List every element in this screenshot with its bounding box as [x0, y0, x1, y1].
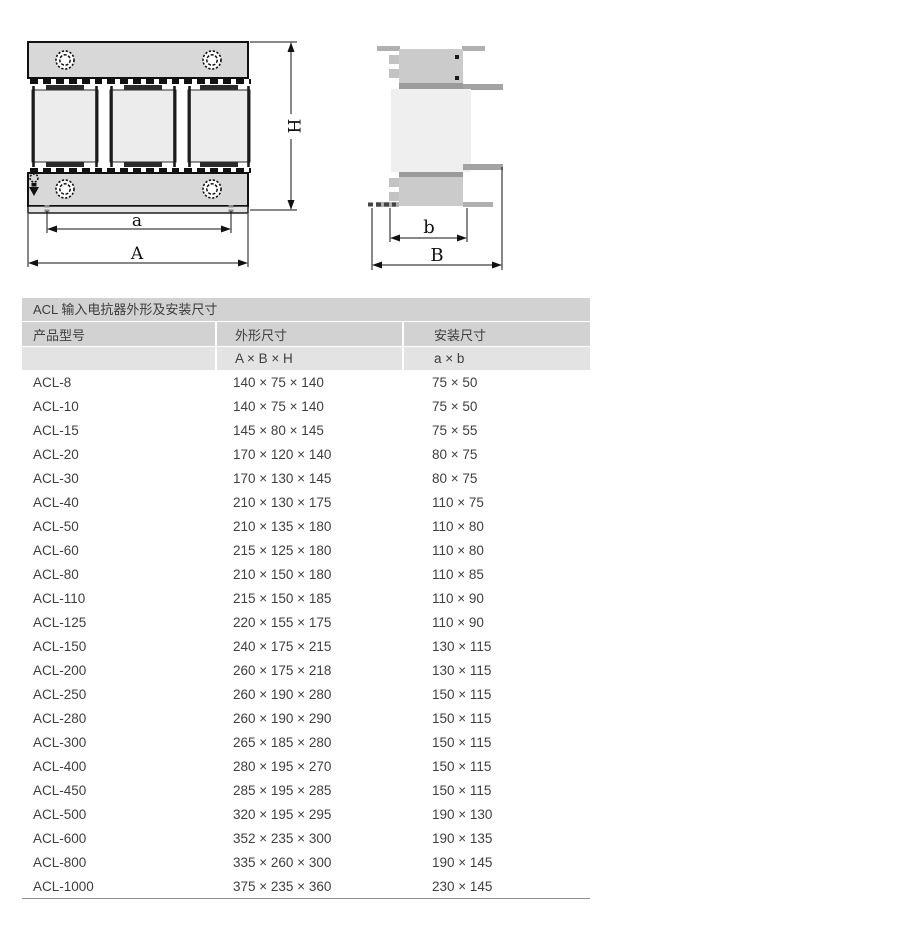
mount-dimensions-cell: 75 × 50 [402, 370, 590, 394]
table-row: ACL-8 140 × 75 × 140 75 × 50 [22, 370, 590, 394]
mount-dimensions-cell: 130 × 115 [402, 658, 590, 682]
table-row: ACL-125 220 × 155 × 175 110 × 90 [22, 610, 590, 634]
mount-dimensions-cell: 150 × 115 [402, 730, 590, 754]
model-cell: ACL-80 [22, 562, 215, 586]
table-subheader-row: A × B × H a × b [22, 347, 590, 370]
clamp-tab [389, 69, 399, 78]
bottom-clamp-side [399, 172, 463, 206]
coil-tab [46, 162, 84, 167]
outline-dimensions-cell: 260 × 175 × 218 [215, 658, 402, 682]
table-row: ACL-150 240 × 175 × 215 130 × 115 [22, 634, 590, 658]
top-rail-left [377, 46, 400, 51]
model-cell: ACL-800 [22, 850, 215, 874]
subheader-empty [22, 347, 215, 370]
coil [110, 90, 176, 162]
mount-dimensions-cell: 110 × 90 [402, 586, 590, 610]
coil-tab [200, 85, 238, 90]
model-cell: ACL-20 [22, 442, 215, 466]
top-rail-right [462, 46, 485, 51]
table-row: ACL-40 210 × 130 × 175 110 × 75 [22, 490, 590, 514]
table-row: ACL-300 265 × 185 × 280 150 × 115 [22, 730, 590, 754]
mount-dimensions-cell: 150 × 115 [402, 754, 590, 778]
outline-dimensions-cell: 352 × 235 × 300 [215, 826, 402, 850]
table-row: ACL-60 215 × 125 × 180 110 × 80 [22, 538, 590, 562]
dimension-label-H: H [283, 119, 303, 134]
mount-dimensions-cell: 230 × 145 [402, 874, 590, 899]
table-row: ACL-10 140 × 75 × 140 75 × 50 [22, 394, 590, 418]
mount-dimensions-cell: 130 × 115 [402, 634, 590, 658]
model-cell: ACL-280 [22, 706, 215, 730]
mount-dimensions-cell: 190 × 145 [402, 850, 590, 874]
table-row: ACL-20 170 × 120 × 140 80 × 75 [22, 442, 590, 466]
table-row: ACL-450 285 × 195 × 285 150 × 115 [22, 778, 590, 802]
subheader-mount-formula: a × b [402, 347, 590, 370]
outline-dimensions-cell: 280 × 195 × 270 [215, 754, 402, 778]
outline-dimensions-cell: 265 × 185 × 280 [215, 730, 402, 754]
mount-dimensions-cell: 150 × 115 [402, 706, 590, 730]
model-cell: ACL-500 [22, 802, 215, 826]
table-row: ACL-1000 375 × 235 × 360 230 × 145 [22, 874, 590, 899]
outline-dimensions-cell: 140 × 75 × 140 [215, 394, 402, 418]
model-cell: ACL-450 [22, 778, 215, 802]
mount-dimensions-cell: 110 × 85 [402, 562, 590, 586]
table-row: ACL-250 260 × 190 × 280 150 × 115 [22, 682, 590, 706]
bolt-hole-icon [56, 180, 74, 198]
mount-dimensions-cell: 110 × 80 [402, 514, 590, 538]
coil [32, 90, 98, 162]
model-cell: ACL-60 [22, 538, 215, 562]
mount-dimensions-cell: 80 × 75 [402, 466, 590, 490]
dimensions-table-section: ACL 输入电抗器外形及安装尺寸 产品型号 外形尺寸 安装尺寸 A × B × … [22, 298, 590, 899]
coil-tab [124, 85, 162, 90]
mount-dimensions-cell: 80 × 75 [402, 442, 590, 466]
outline-dimensions-cell: 335 × 260 × 300 [215, 850, 402, 874]
outline-dimensions-cell: 215 × 125 × 180 [215, 538, 402, 562]
coil-tab [124, 162, 162, 167]
bolt-hole-icon [203, 51, 221, 69]
clamp-tab [389, 55, 399, 64]
model-cell: ACL-50 [22, 514, 215, 538]
dimension-label-B: B [430, 245, 443, 266]
clamp-tab [389, 192, 399, 201]
column-header-mount: 安装尺寸 [402, 322, 590, 347]
column-header-outline: 外形尺寸 [215, 322, 402, 347]
outline-dimensions-cell: 170 × 120 × 140 [215, 442, 402, 466]
model-cell: ACL-600 [22, 826, 215, 850]
table-row: ACL-280 260 × 190 × 290 150 × 115 [22, 706, 590, 730]
table-row: ACL-600 352 × 235 × 300 190 × 135 [22, 826, 590, 850]
model-cell: ACL-40 [22, 490, 215, 514]
top-clamp-side [399, 49, 463, 85]
dimension-label-a: a [132, 211, 142, 231]
coil-body-side [391, 89, 471, 172]
side-rail-lower [463, 164, 503, 170]
table-row: ACL-400 280 × 195 × 270 150 × 115 [22, 754, 590, 778]
bolt-hole-icon [56, 51, 74, 69]
foot-rail-right [463, 202, 493, 207]
model-cell: ACL-10 [22, 394, 215, 418]
model-cell: ACL-200 [22, 658, 215, 682]
outline-dimensions-cell: 220 × 155 × 175 [215, 610, 402, 634]
technical-drawings: H a A [0, 0, 900, 292]
model-cell: ACL-110 [22, 586, 215, 610]
mount-dimensions-cell: 190 × 130 [402, 802, 590, 826]
mount-dimensions-cell: 110 × 75 [402, 490, 590, 514]
model-cell: ACL-1000 [22, 874, 215, 899]
outline-dimensions-cell: 240 × 175 × 215 [215, 634, 402, 658]
outline-dimensions-cell: 215 × 150 × 185 [215, 586, 402, 610]
coil-tab [200, 162, 238, 167]
outline-dimensions-cell: 210 × 150 × 180 [215, 562, 402, 586]
table-row: ACL-15 145 × 80 × 145 75 × 55 [22, 418, 590, 442]
table-row: ACL-50 210 × 135 × 180 110 × 80 [22, 514, 590, 538]
outline-dimensions-cell: 260 × 190 × 290 [215, 706, 402, 730]
outline-dimensions-cell: 140 × 75 × 140 [215, 370, 402, 394]
front-view-drawing: H a A [28, 42, 303, 267]
outline-dimensions-cell: 320 × 195 × 295 [215, 802, 402, 826]
side-view-drawing: b B [368, 46, 503, 270]
outline-dimensions-cell: 145 × 80 × 145 [215, 418, 402, 442]
table-row: ACL-30 170 × 130 × 145 80 × 75 [22, 466, 590, 490]
coil [188, 90, 250, 162]
dimensions-table: 产品型号 外形尺寸 安装尺寸 A × B × H a × b ACL-8 140… [22, 322, 590, 899]
table-row: ACL-800 335 × 260 × 300 190 × 145 [22, 850, 590, 874]
mount-dimensions-cell: 150 × 115 [402, 778, 590, 802]
mount-dimensions-cell: 110 × 90 [402, 610, 590, 634]
model-cell: ACL-8 [22, 370, 215, 394]
subheader-outline-formula: A × B × H [215, 347, 402, 370]
outline-dimensions-cell: 375 × 235 × 360 [215, 874, 402, 899]
table-row: ACL-500 320 × 195 × 295 190 × 130 [22, 802, 590, 826]
mount-dimensions-cell: 75 × 55 [402, 418, 590, 442]
model-cell: ACL-400 [22, 754, 215, 778]
outline-dimensions-cell: 210 × 135 × 180 [215, 514, 402, 538]
model-cell: ACL-125 [22, 610, 215, 634]
model-cell: ACL-300 [22, 730, 215, 754]
outline-dimensions-cell: 285 × 195 × 285 [215, 778, 402, 802]
table-row: ACL-110 215 × 150 × 185 110 × 90 [22, 586, 590, 610]
column-header-model: 产品型号 [22, 322, 215, 347]
mount-dimensions-cell: 110 × 80 [402, 538, 590, 562]
table-row: ACL-80 210 × 150 × 180 110 × 85 [22, 562, 590, 586]
clamp-tab [389, 178, 399, 187]
model-cell: ACL-250 [22, 682, 215, 706]
model-cell: ACL-15 [22, 418, 215, 442]
mount-dimensions-cell: 75 × 50 [402, 394, 590, 418]
outline-dimensions-cell: 210 × 130 × 175 [215, 490, 402, 514]
outline-dimensions-cell: 170 × 130 × 145 [215, 466, 402, 490]
table-header-row: 产品型号 外形尺寸 安装尺寸 [22, 322, 590, 347]
model-cell: ACL-30 [22, 466, 215, 490]
dimension-label-b: b [423, 217, 435, 238]
model-cell: ACL-150 [22, 634, 215, 658]
datasheet-page: H a A [0, 0, 900, 937]
outline-dimensions-cell: 260 × 190 × 280 [215, 682, 402, 706]
mount-dimensions-cell: 150 × 115 [402, 682, 590, 706]
bolt-hole-icon [203, 180, 221, 198]
mount-dimensions-cell: 190 × 135 [402, 826, 590, 850]
coil-tab [46, 85, 84, 90]
dimension-label-A: A [130, 244, 144, 264]
table-title: ACL 输入电抗器外形及安装尺寸 [22, 298, 590, 321]
table-row: ACL-200 260 × 175 × 218 130 × 115 [22, 658, 590, 682]
